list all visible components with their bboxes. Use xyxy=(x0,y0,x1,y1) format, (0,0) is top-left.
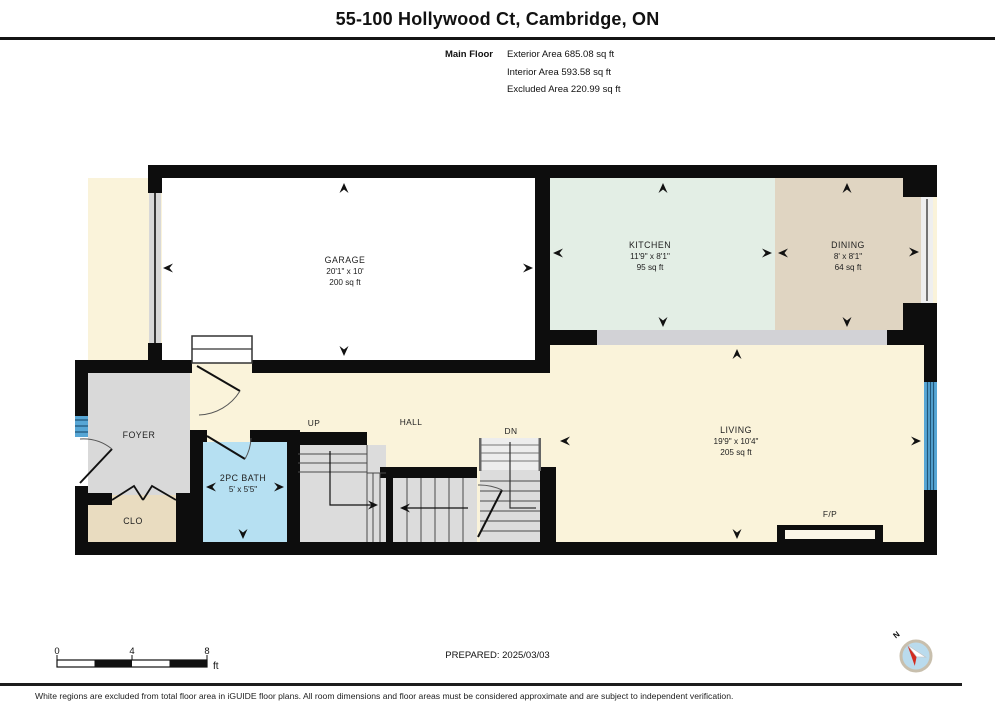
wall-foyer-left-upper xyxy=(75,368,88,416)
living-dims: 19'9" x 10'4" xyxy=(714,437,759,446)
wall-stub-dining xyxy=(887,330,937,345)
wall-garage-kitchen xyxy=(535,165,550,373)
wall-top xyxy=(148,165,910,178)
garage-dims: 20'1" x 10' xyxy=(326,267,364,276)
bath-dims: 5' x 5'5" xyxy=(229,485,257,494)
dining-dims: 8' x 8'1" xyxy=(834,252,862,261)
living-area: 205 sq ft xyxy=(720,448,752,457)
wall-garage-left-upper xyxy=(148,165,162,193)
kitchen-area: 95 sq ft xyxy=(637,263,665,272)
floorplan-page: 55-100 Hollywood Ct, Cambridge, ON Main … xyxy=(0,0,995,720)
closet-label: CLO xyxy=(123,516,143,526)
prepared-date: PREPARED: 2025/03/03 xyxy=(0,650,995,661)
wall-bath-top-left xyxy=(190,430,207,442)
disclaimer: White regions are excluded from total fl… xyxy=(35,691,965,701)
living-label: LIVING xyxy=(720,425,752,435)
wall-mid-stairs-top xyxy=(380,467,477,478)
wall-living-right-lower xyxy=(924,490,937,550)
compass-north-label: N xyxy=(891,630,901,641)
stairs-down-label: DN xyxy=(505,426,518,436)
kitchen-label: KITCHEN xyxy=(629,240,671,250)
wall-bath-left xyxy=(190,430,203,542)
wall-up-stairs-top xyxy=(297,432,367,445)
dining-area: 64 sq ft xyxy=(835,263,863,272)
dining-label: DINING xyxy=(831,240,865,250)
railing-post-left xyxy=(479,438,482,471)
scale-unit-label: ft xyxy=(213,661,219,672)
foyer-label: FOYER xyxy=(123,430,156,440)
wall-dining-right-lower xyxy=(903,303,937,334)
railing-post-right xyxy=(539,438,542,471)
scale-bar-segment xyxy=(170,660,208,667)
wall-stub-kitchen xyxy=(550,330,597,345)
wall-foyer-closet xyxy=(75,493,112,505)
wall-closet-right xyxy=(176,493,190,542)
wall-corner-top-right xyxy=(903,165,937,197)
kitchen-dims: 11'9" x 8'1" xyxy=(630,252,670,261)
fireplace-label: F/P xyxy=(823,509,837,519)
hall-label: HALL xyxy=(400,417,423,427)
stairs-up-label: UP xyxy=(308,418,320,428)
fireplace xyxy=(777,525,883,544)
wall-stairs-living xyxy=(540,467,556,542)
fireplace-inner xyxy=(785,530,875,539)
floorplan-drawing: GARAGE 20'1" x 10' 200 sq ft KITCHEN 11'… xyxy=(0,0,995,720)
wall-garage-bottom-left xyxy=(75,360,192,373)
half-wall-band xyxy=(597,330,887,345)
wall-bath-right xyxy=(287,430,300,542)
garage-label: GARAGE xyxy=(325,255,366,265)
wall-garage-bottom-right xyxy=(252,360,550,373)
bath-label: 2PC BATH xyxy=(220,473,266,483)
wall-stairs-divider xyxy=(386,467,393,542)
footer-divider xyxy=(0,683,962,686)
garage-area: 200 sq ft xyxy=(329,278,361,287)
scale-bar-segment xyxy=(95,660,133,667)
